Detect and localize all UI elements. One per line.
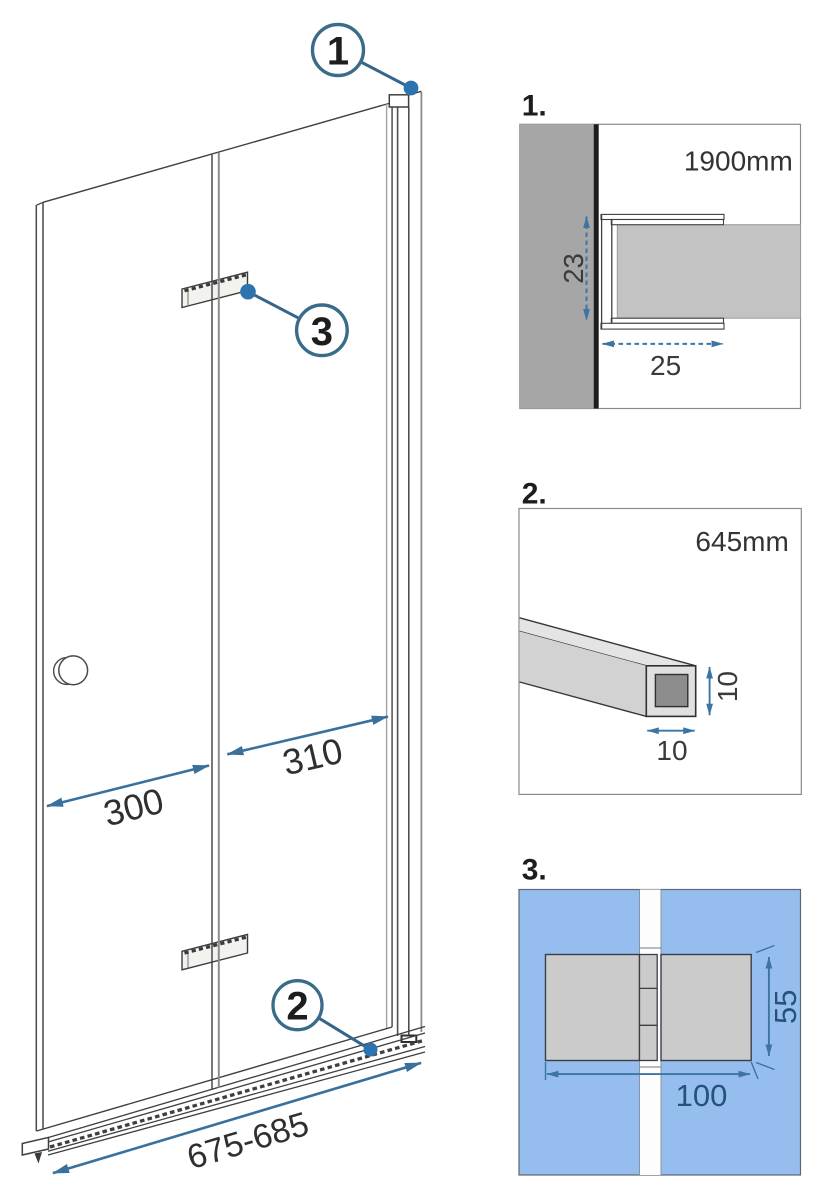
svg-text:55: 55: [768, 990, 803, 1024]
svg-text:2.: 2.: [522, 478, 547, 511]
svg-text:3: 3: [311, 310, 333, 354]
svg-text:3.: 3.: [522, 854, 547, 887]
svg-text:2: 2: [286, 985, 308, 1029]
svg-text:10: 10: [712, 671, 743, 702]
svg-text:23: 23: [558, 253, 589, 284]
svg-text:100: 100: [676, 1078, 728, 1113]
svg-text:25: 25: [650, 350, 681, 381]
svg-text:1900mm: 1900mm: [684, 146, 793, 177]
svg-text:1: 1: [327, 30, 349, 74]
svg-text:1.: 1.: [522, 90, 547, 123]
svg-text:10: 10: [656, 735, 687, 766]
svg-text:645mm: 645mm: [695, 526, 788, 557]
